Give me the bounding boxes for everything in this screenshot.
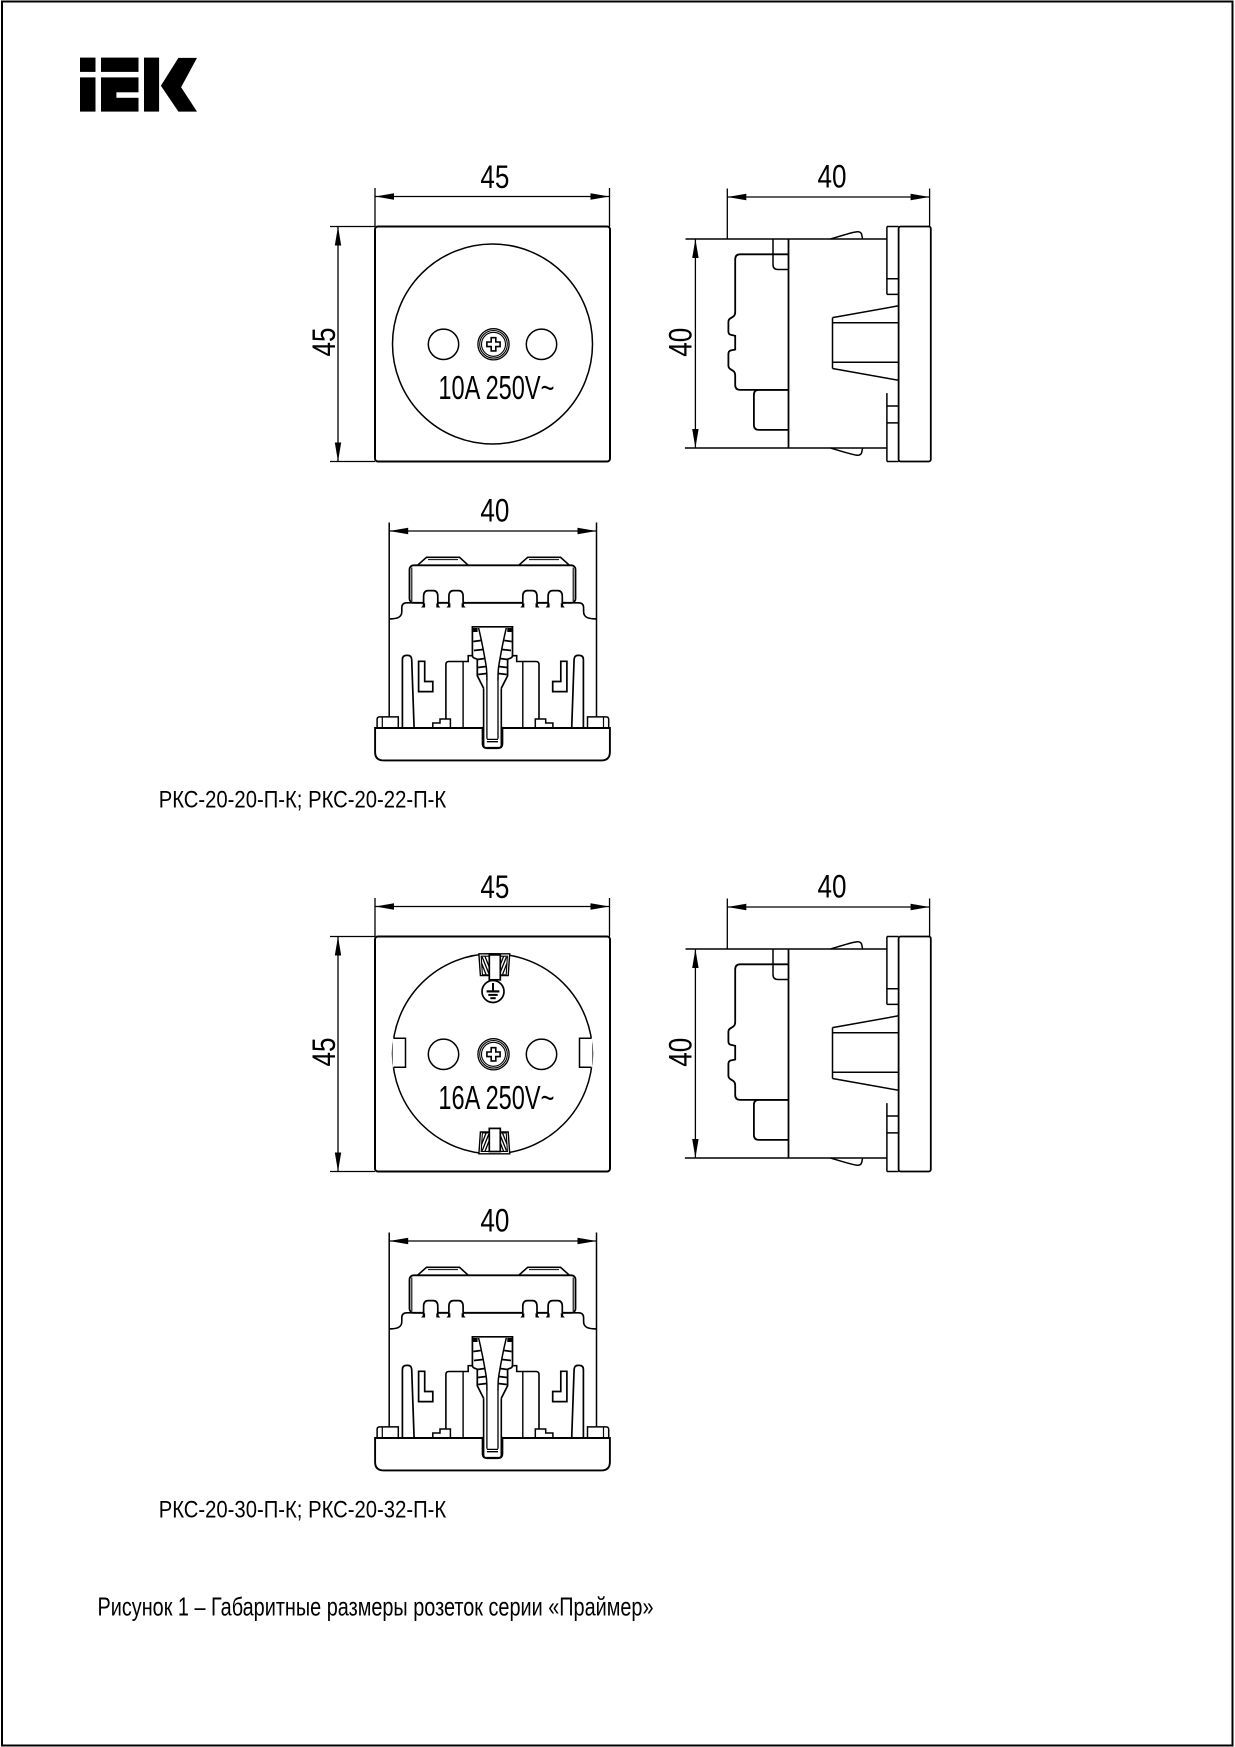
svg-text:10A 250V~: 10A 250V~ bbox=[438, 370, 554, 407]
svg-text:Рисунок 1 – Габаритные размеры: Рисунок 1 – Габаритные размеры розеток с… bbox=[98, 1592, 654, 1622]
svg-text:РКС-20-20-П-К; РКС-20-22-П-К: РКС-20-20-П-К; РКС-20-22-П-К bbox=[159, 787, 447, 814]
svg-text:40: 40 bbox=[480, 493, 509, 529]
svg-text:45: 45 bbox=[480, 869, 509, 905]
svg-text:РКС-20-30-П-К; РКС-20-32-П-К: РКС-20-30-П-К; РКС-20-32-П-К bbox=[159, 1497, 447, 1524]
svg-text:40: 40 bbox=[818, 159, 847, 195]
svg-text:40: 40 bbox=[663, 328, 699, 357]
svg-text:45: 45 bbox=[306, 328, 342, 357]
svg-text:45: 45 bbox=[306, 1038, 342, 1067]
svg-text:45: 45 bbox=[480, 159, 509, 195]
svg-text:16A 250V~: 16A 250V~ bbox=[438, 1080, 554, 1117]
